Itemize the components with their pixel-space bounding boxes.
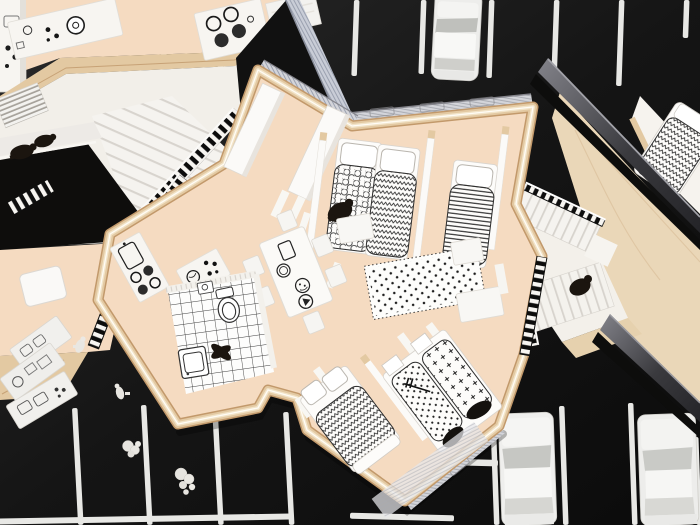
car-windshield — [642, 447, 693, 473]
car-bottom-center — [498, 412, 557, 525]
car-hood — [501, 417, 551, 447]
sofa-bench — [336, 213, 374, 244]
scene — [0, 0, 700, 525]
figure-body — [217, 347, 226, 356]
figure-limb — [73, 345, 78, 348]
model-photo-stage — [0, 0, 700, 525]
basin-body — [178, 346, 209, 379]
crumb — [183, 489, 189, 495]
figure-head — [80, 336, 85, 341]
figure-head — [50, 134, 56, 140]
car-rear-window — [644, 497, 695, 516]
car-top — [431, 0, 483, 81]
crumb — [189, 484, 195, 490]
crumb — [179, 481, 187, 489]
bathroom — [166, 274, 274, 394]
figure-head — [584, 275, 592, 283]
sofa-bench — [450, 238, 484, 266]
crumb — [135, 441, 141, 447]
figure-head — [115, 384, 120, 389]
car-roof — [645, 469, 692, 499]
crumb — [128, 451, 135, 458]
washing-machine — [197, 281, 214, 294]
hob-dot — [5, 64, 9, 68]
washer-body — [197, 281, 214, 294]
car-rear-window — [504, 497, 554, 515]
washbasin — [178, 346, 209, 379]
car-bottom-right — [637, 413, 699, 525]
car-trunk — [505, 513, 554, 525]
car-roof — [504, 467, 552, 499]
car-trunk — [645, 514, 697, 525]
car-windshield — [502, 445, 552, 471]
car-roof — [434, 32, 476, 59]
car-rear-window — [434, 58, 475, 71]
car-hood — [437, 1, 479, 19]
figure-limb — [125, 392, 130, 395]
figure-head — [345, 199, 353, 207]
hob-dot — [5, 45, 10, 50]
